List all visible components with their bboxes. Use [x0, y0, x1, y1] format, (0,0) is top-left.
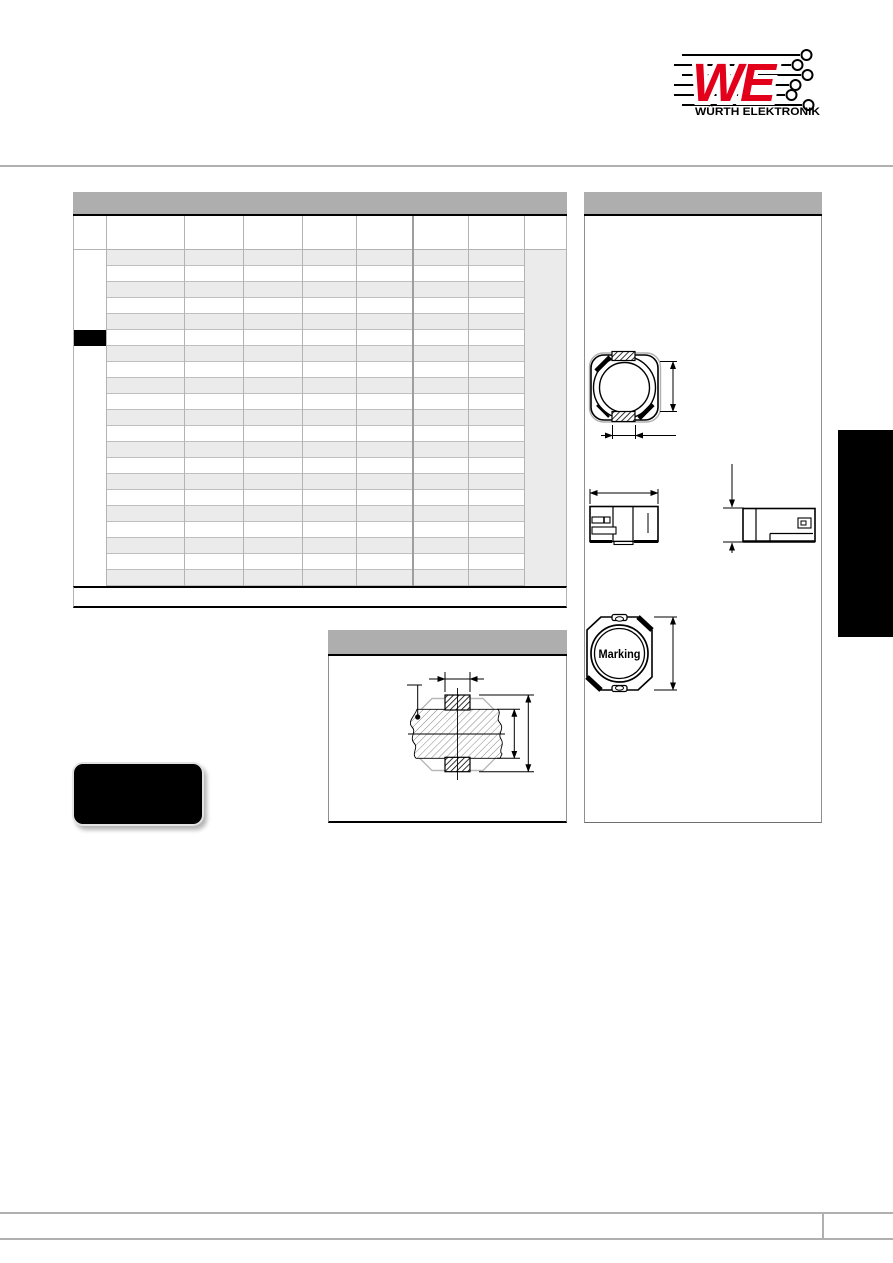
table-row [74, 378, 566, 394]
chapter-side-tab [838, 430, 893, 637]
table-row [74, 394, 566, 410]
footer-rule-top [0, 1212, 893, 1214]
table-column-divider [243, 216, 244, 586]
logo-caption: WÜRTH ELEKTRONIK [695, 105, 820, 117]
table-row-highlight-marker [74, 330, 106, 346]
table-column-divider [468, 216, 469, 586]
table-row [74, 442, 566, 458]
table-row [74, 298, 566, 314]
table-column-divider [302, 216, 303, 586]
dimensions-title-bar [584, 192, 822, 214]
table-column-divider [356, 216, 357, 586]
datasheet-page: WE WÜRTH ELEKTRONIK [0, 0, 893, 1263]
table-row [74, 282, 566, 298]
wuerth-elektronik-logo: WE WÜRTH ELEKTRONIK [672, 45, 822, 117]
table-title-bar [73, 192, 567, 214]
top-rule [0, 165, 893, 167]
table-row [74, 346, 566, 362]
land-pattern-drawing [329, 655, 566, 822]
logo-we-mark: WE [692, 53, 778, 113]
table-row [74, 426, 566, 442]
table-row [74, 266, 566, 282]
table-column-divider [412, 216, 414, 586]
table-row [74, 410, 566, 426]
table-row [74, 490, 566, 506]
table-column-divider [106, 216, 107, 586]
table-row [74, 330, 566, 346]
table-column-divider [524, 216, 525, 586]
table-row [74, 554, 566, 570]
table-first-column [74, 250, 106, 586]
marking-view-drawing: Marking [584, 610, 694, 705]
table-header-row [74, 216, 566, 250]
table-row [74, 474, 566, 490]
side-views-drawing [584, 460, 822, 555]
land-pattern-title-bar [328, 630, 567, 654]
table-last-column-shaded [524, 250, 567, 586]
table-row [74, 522, 566, 538]
top-view-drawing [584, 345, 694, 445]
table-row [74, 250, 566, 266]
footer-rule-bottom [0, 1238, 893, 1240]
table-column-divider [184, 216, 185, 586]
table-row [74, 538, 566, 554]
table-footer-note [73, 586, 567, 608]
table-row [74, 570, 566, 586]
table-row [74, 314, 566, 330]
table-row [74, 458, 566, 474]
footer-divider [822, 1212, 824, 1240]
logo-circles [787, 50, 814, 110]
table-row [74, 506, 566, 522]
compliance-badge [72, 762, 204, 826]
marking-label: Marking [599, 649, 641, 661]
table-body [73, 216, 567, 586]
table-row [74, 362, 566, 378]
